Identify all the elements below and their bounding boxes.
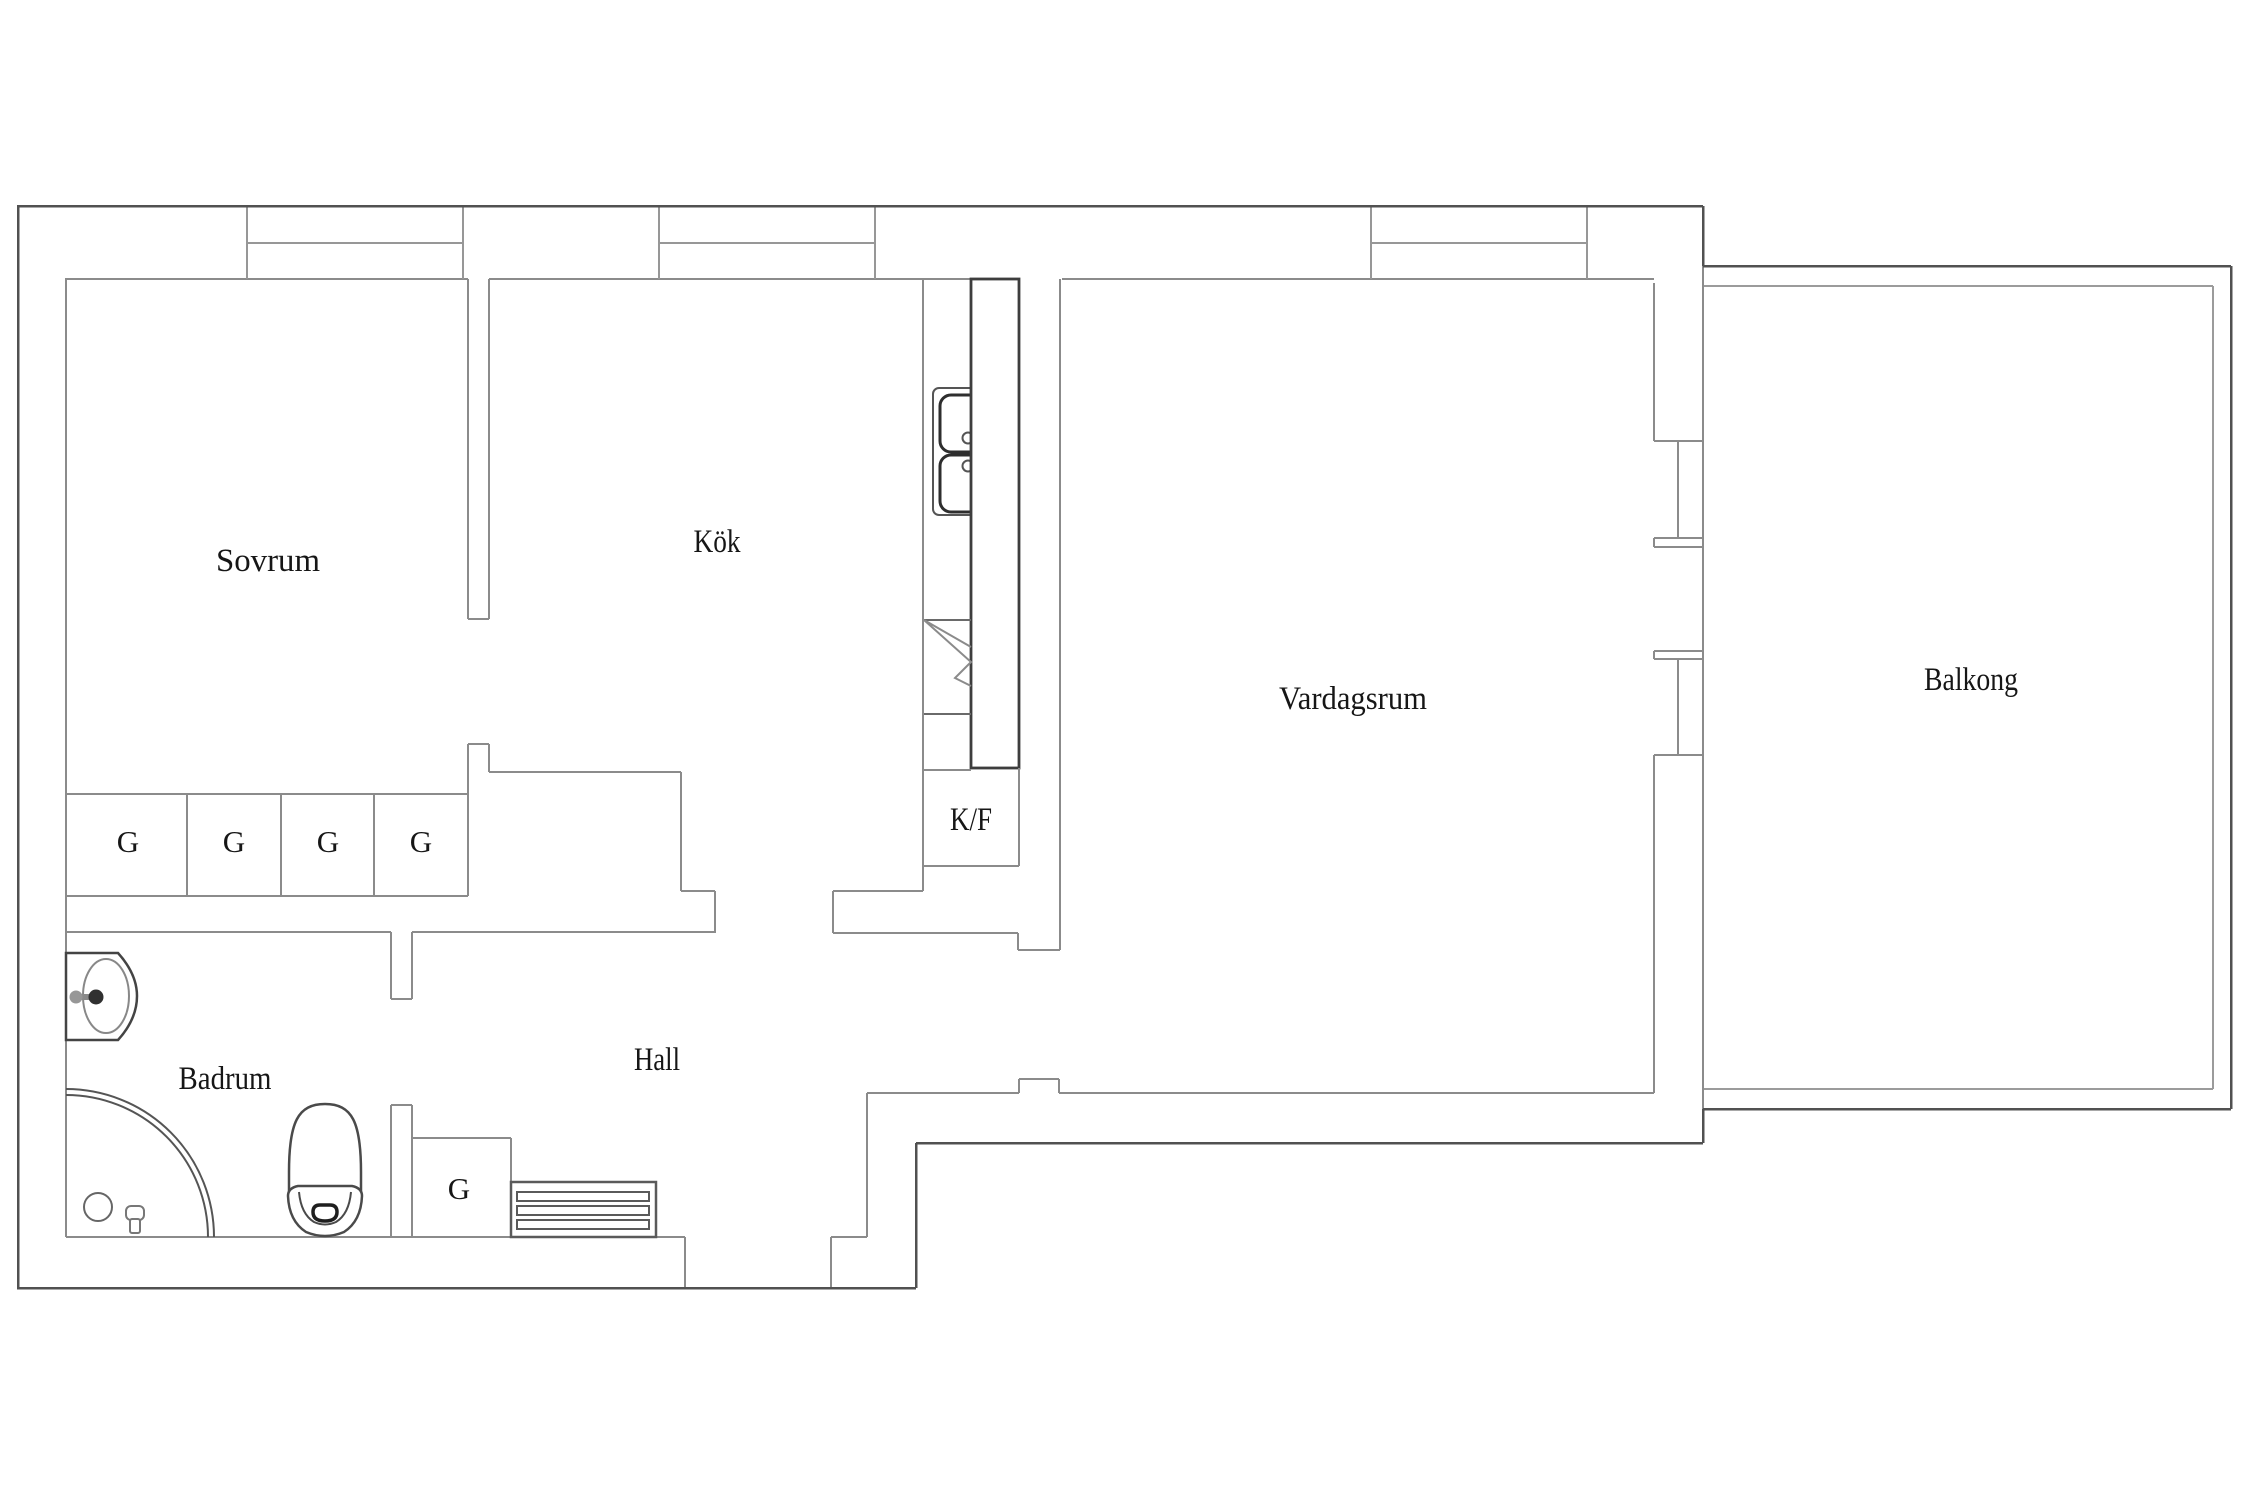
svg-text:G: G: [223, 824, 245, 859]
svg-text:G: G: [317, 824, 339, 859]
svg-text:Hall: Hall: [634, 1042, 680, 1078]
svg-text:Vardagsrum: Vardagsrum: [1279, 681, 1427, 717]
svg-text:Sovrum: Sovrum: [216, 543, 320, 579]
svg-text:Badrum: Badrum: [179, 1061, 272, 1097]
svg-text:Kök: Kök: [694, 524, 741, 560]
svg-text:Balkong: Balkong: [1924, 662, 2018, 698]
svg-text:K/F: K/F: [950, 802, 992, 838]
svg-text:G: G: [117, 824, 139, 859]
svg-text:G: G: [410, 824, 432, 859]
svg-text:G: G: [448, 1171, 470, 1206]
